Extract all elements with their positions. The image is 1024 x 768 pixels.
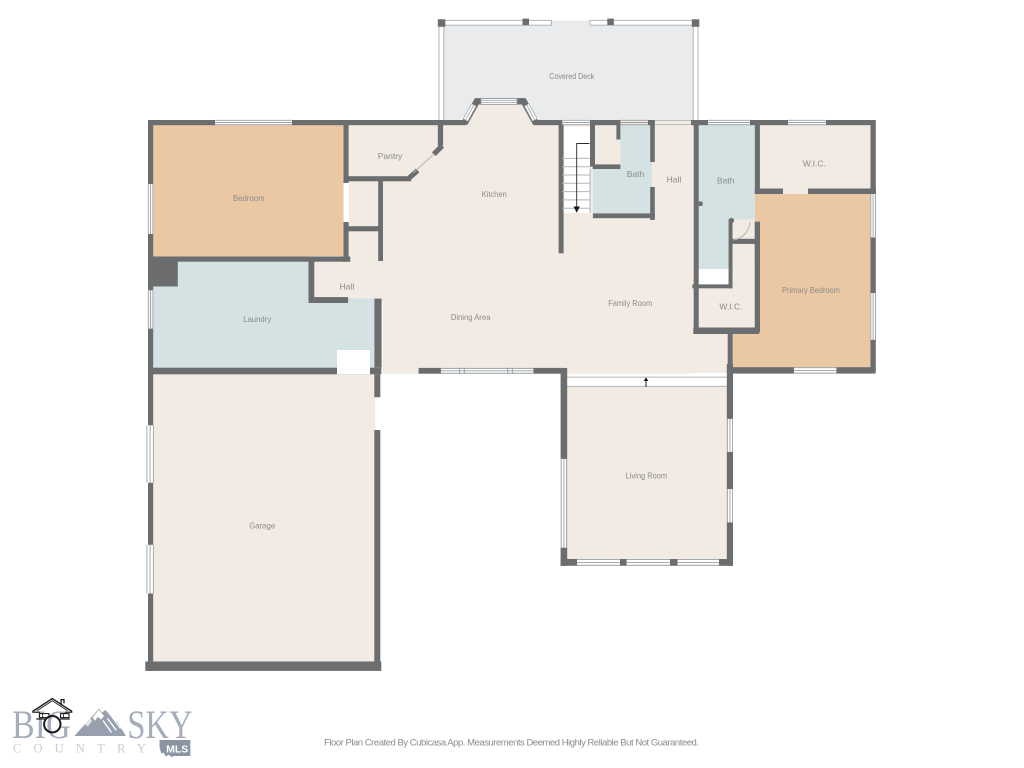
svg-text:Covered Deck: Covered Deck <box>549 71 595 81</box>
svg-text:Primary Bedroom: Primary Bedroom <box>782 285 840 295</box>
svg-text:Living Room: Living Room <box>626 470 668 480</box>
svg-text:Floor Plan Created By Cubicasa: Floor Plan Created By Cubicasa App. Meas… <box>324 738 699 749</box>
svg-text:Laundry: Laundry <box>243 314 272 324</box>
svg-text:W.I.C.: W.I.C. <box>719 302 742 312</box>
svg-text:Bedroom: Bedroom <box>233 193 265 203</box>
svg-text:Garage: Garage <box>249 521 275 531</box>
svg-text:Hall: Hall <box>340 282 355 292</box>
svg-text:Pantry: Pantry <box>378 151 403 161</box>
svg-text:Dining Area: Dining Area <box>451 312 491 322</box>
svg-text:Hall: Hall <box>667 175 682 185</box>
svg-text:Bath: Bath <box>717 176 735 186</box>
svg-text:Family Room: Family Room <box>608 298 652 308</box>
svg-text:MLS: MLS <box>166 744 188 756</box>
svg-text:Kitchen: Kitchen <box>482 189 507 199</box>
svg-text:Bath: Bath <box>627 169 645 179</box>
svg-text:W.I.C.: W.I.C. <box>803 159 826 169</box>
